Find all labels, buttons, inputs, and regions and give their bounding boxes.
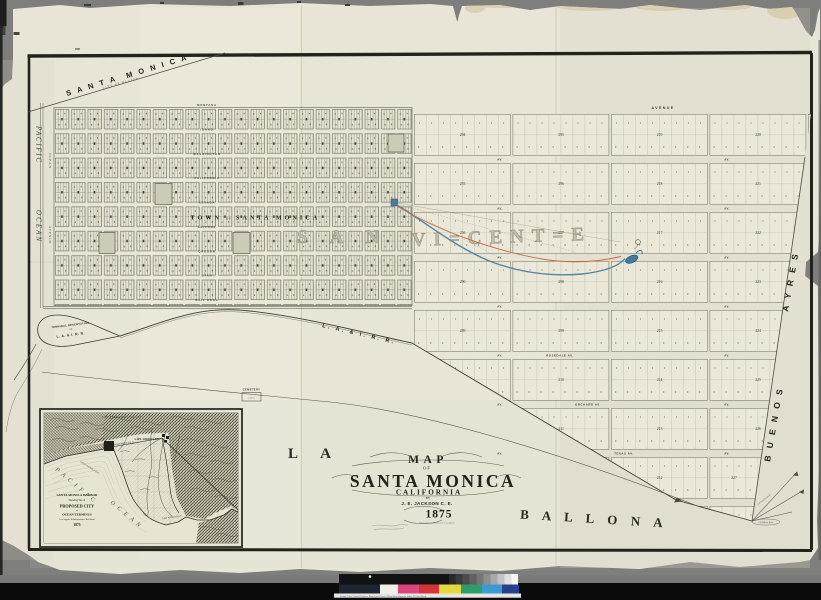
svg-text:225: 225 bbox=[755, 378, 761, 382]
svg-text:216: 216 bbox=[657, 280, 663, 284]
svg-text:ROSEDALE AV.: ROSEDALE AV. bbox=[546, 354, 574, 358]
svg-text:AV.: AV. bbox=[497, 354, 502, 358]
svg-text:ARIZONA: ARIZONA bbox=[198, 225, 217, 229]
svg-text:213: 213 bbox=[657, 427, 663, 431]
svg-text:OCEAN: OCEAN bbox=[48, 153, 52, 169]
svg-text:Showing Site of: Showing Site of bbox=[69, 499, 86, 502]
svg-text:220: 220 bbox=[755, 133, 761, 137]
svg-text:UTAH: UTAH bbox=[202, 274, 213, 278]
svg-text:CALIFORNIA: CALIFORNIA bbox=[194, 176, 220, 180]
svg-text:AVENUE: AVENUE bbox=[651, 106, 674, 110]
svg-text:PROPOSED CITY: PROPOSED CITY bbox=[60, 504, 94, 509]
svg-text:214: 214 bbox=[657, 378, 663, 382]
svg-text:215: 215 bbox=[657, 329, 663, 333]
svg-text:AV.: AV. bbox=[724, 403, 729, 407]
svg-text:NEVADA: NEVADA bbox=[199, 201, 216, 205]
svg-text:AVENUE: AVENUE bbox=[48, 226, 52, 244]
svg-text:OCEAN: OCEAN bbox=[35, 210, 42, 243]
svg-text:SAN: SAN bbox=[297, 227, 401, 248]
svg-text:AV.: AV. bbox=[497, 305, 502, 309]
svg-text:OCEAN TERMINUS: OCEAN TERMINUS bbox=[62, 513, 92, 517]
svg-text:2 Acres: 2 Acres bbox=[248, 397, 255, 400]
svg-text:210: 210 bbox=[558, 378, 564, 382]
svg-text:224: 224 bbox=[755, 329, 761, 333]
svg-text:CEMETERY: CEMETERY bbox=[243, 388, 261, 392]
svg-text:226: 226 bbox=[755, 427, 761, 431]
svg-text:MONTANA: MONTANA bbox=[197, 103, 217, 107]
svg-text:221: 221 bbox=[755, 182, 761, 186]
svg-text:AV.: AV. bbox=[724, 354, 729, 358]
svg-text:AV.: AV. bbox=[724, 256, 729, 260]
svg-text:Entered according to Act of Co: Entered according to Act of Congress bbox=[419, 522, 455, 525]
svg-text:PACIFIC: PACIFIC bbox=[35, 125, 42, 164]
svg-text:Los Angeles & Independence Rai: Los Angeles & Independence Rail Road bbox=[59, 518, 95, 521]
svg-text:219: 219 bbox=[657, 133, 663, 137]
svg-text:SANTA MONICA HARBOR: SANTA MONICA HARBOR bbox=[57, 493, 98, 497]
svg-text:1875: 1875 bbox=[73, 523, 80, 527]
svg-text:AV.: AV. bbox=[497, 158, 502, 162]
svg-text:AV.: AV. bbox=[497, 256, 502, 260]
svg-text:227: 227 bbox=[731, 476, 737, 480]
svg-text:La Ballona Rcho: La Ballona Rcho bbox=[759, 522, 775, 524]
svg-text:217: 217 bbox=[657, 231, 663, 235]
svg-text:255: 255 bbox=[460, 182, 466, 186]
svg-text:1875: 1875 bbox=[426, 509, 453, 521]
svg-text:ORCHARD AV.: ORCHARD AV. bbox=[575, 403, 601, 407]
svg-text:223: 223 bbox=[755, 280, 761, 284]
svg-text:294: 294 bbox=[460, 133, 466, 137]
svg-text:SANTA MONICA: SANTA MONICA bbox=[236, 215, 320, 222]
svg-text:OREGON: OREGON bbox=[198, 249, 215, 253]
svg-text:WASHINGTON: WASHINGTON bbox=[193, 152, 220, 156]
svg-text:RAIL ROAD: RAIL ROAD bbox=[196, 298, 219, 302]
svg-text:AV.: AV. bbox=[724, 158, 729, 162]
svg-text:AV.: AV. bbox=[497, 207, 502, 211]
svg-text:299: 299 bbox=[558, 329, 564, 333]
svg-text:AV.: AV. bbox=[724, 452, 729, 456]
svg-text:TEXAS AV.: TEXAS AV. bbox=[614, 452, 634, 456]
svg-text:212: 212 bbox=[657, 476, 663, 480]
svg-text:AV.: AV. bbox=[497, 403, 502, 407]
svg-text:289: 289 bbox=[460, 329, 466, 333]
svg-text:Kodak Color Control Patches B: Kodak Color Control Patches Blue Cyan Gr… bbox=[340, 595, 427, 598]
svg-text:IDAHO: IDAHO bbox=[200, 127, 213, 131]
svg-text:BY: BY bbox=[426, 496, 431, 500]
svg-text:AV.: AV. bbox=[724, 305, 729, 309]
svg-text:TOWN: TOWN bbox=[191, 215, 222, 222]
svg-text:AV.: AV. bbox=[724, 207, 729, 211]
svg-text:L A: L A bbox=[288, 446, 341, 462]
svg-text:SAN FERNANDO VALLEY: SAN FERNANDO VALLEY bbox=[102, 416, 142, 419]
svg-text:295: 295 bbox=[558, 133, 564, 137]
svg-text:OF: OF bbox=[423, 466, 431, 471]
svg-text:296: 296 bbox=[558, 182, 564, 186]
svg-text:218: 218 bbox=[657, 182, 663, 186]
svg-text:298: 298 bbox=[558, 280, 564, 284]
svg-text:LOS ANGELES: LOS ANGELES bbox=[135, 437, 160, 441]
svg-text:OF: OF bbox=[226, 217, 231, 221]
svg-text:222: 222 bbox=[755, 231, 761, 235]
svg-text:MAP: MAP bbox=[408, 454, 448, 466]
svg-text:AV.: AV. bbox=[497, 452, 502, 456]
svg-text:290: 290 bbox=[460, 280, 466, 284]
svg-text:J. E. JACKSON C. E.: J. E. JACKSON C. E. bbox=[401, 501, 452, 506]
